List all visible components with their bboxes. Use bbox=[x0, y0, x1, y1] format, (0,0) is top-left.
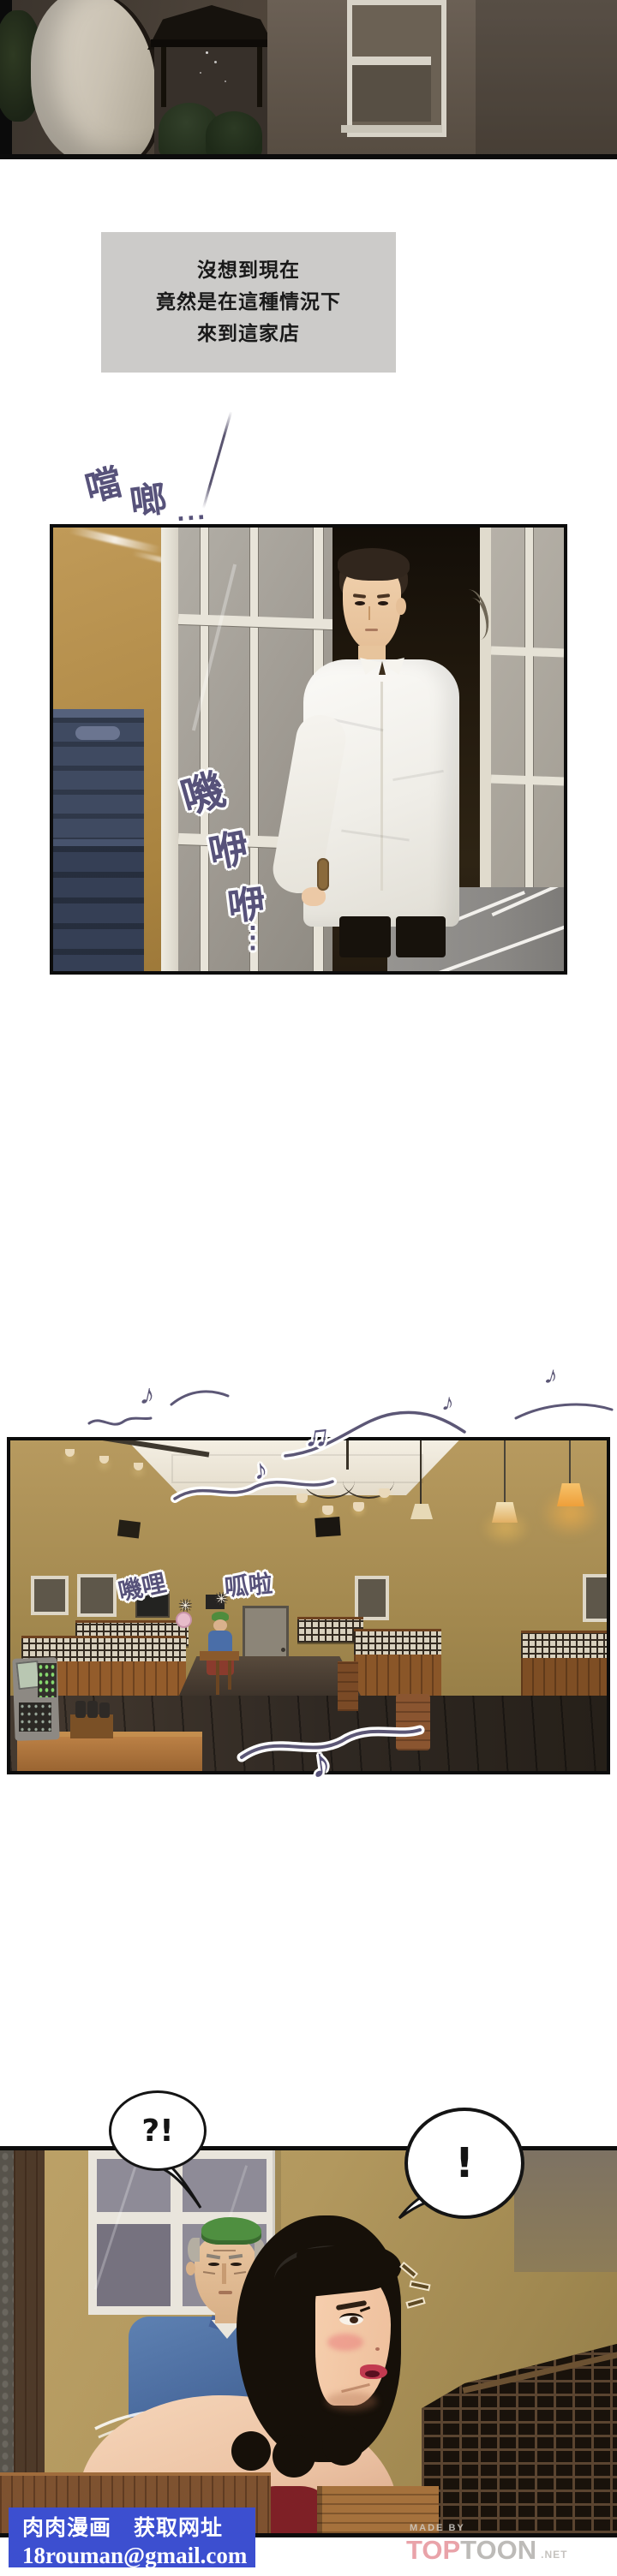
site-branding: MADE BY TOP TOON .NET bbox=[406, 2523, 612, 2569]
panel-night-street bbox=[0, 0, 617, 159]
building-window bbox=[347, 0, 446, 137]
guest-head bbox=[213, 1619, 227, 1631]
blush bbox=[327, 2334, 363, 2351]
watermark-title: 肉肉漫画 bbox=[22, 2511, 111, 2542]
crate bbox=[53, 709, 144, 846]
speaker bbox=[314, 1517, 340, 1537]
music-arc-line bbox=[168, 1386, 231, 1408]
door-crossbar bbox=[491, 647, 564, 658]
table-leg bbox=[216, 1661, 219, 1695]
man-mouth bbox=[365, 629, 378, 631]
sfx-door-chime: 啷 bbox=[128, 480, 168, 521]
pos-keypad bbox=[38, 1663, 57, 1697]
pos-keypad bbox=[19, 1702, 51, 1732]
chair bbox=[338, 1661, 358, 1711]
roof-post bbox=[161, 47, 166, 107]
roof-beam bbox=[151, 39, 273, 47]
window bbox=[31, 1576, 69, 1615]
brand-top: TOP bbox=[406, 2535, 460, 2566]
watermark-subtitle: 获取网址 bbox=[134, 2511, 223, 2542]
door-handle bbox=[317, 858, 329, 891]
track-light-cone bbox=[99, 1456, 109, 1464]
chandelier-shade bbox=[379, 1488, 390, 1498]
door-crossbar bbox=[491, 775, 564, 786]
watermark-box: 肉肉漫画 获取网址 18rouman@gmail.com bbox=[9, 2507, 255, 2567]
booth-lattice bbox=[354, 1629, 441, 1658]
woman-lips bbox=[360, 2364, 387, 2379]
table-leg bbox=[228, 1661, 231, 1690]
pendant-lamp-cone bbox=[557, 1483, 584, 1506]
panel-border-bottom bbox=[0, 154, 617, 159]
watermark-email: 18rouman@gmail.com bbox=[22, 2543, 255, 2569]
brand-toon: TOON bbox=[460, 2535, 536, 2566]
window bbox=[583, 1574, 610, 1622]
glass-shine bbox=[192, 563, 237, 730]
paper-fan bbox=[176, 1612, 192, 1628]
track-light-cone bbox=[134, 1463, 143, 1470]
music-note-icon: ♪ bbox=[542, 1363, 561, 1391]
man-eye bbox=[355, 601, 365, 605]
bush bbox=[206, 111, 262, 159]
shaker bbox=[87, 1701, 98, 1718]
surprise-line bbox=[408, 2299, 423, 2307]
sparkle-icon: ✳ bbox=[216, 1591, 227, 1607]
shaker bbox=[75, 1701, 86, 1718]
gray-wall-band bbox=[514, 2150, 617, 2272]
music-note-icon: ♫ bbox=[303, 1418, 332, 1454]
shade-right bbox=[476, 0, 617, 159]
music-note-icon: ♪ bbox=[138, 1380, 159, 1411]
sfx-door-creak-dots: ⋮ bbox=[238, 923, 267, 952]
hair-curl bbox=[231, 2431, 271, 2471]
track-light-cone bbox=[65, 1449, 75, 1457]
made-by-label: MADE BY bbox=[410, 2523, 465, 2533]
crate-handle bbox=[75, 726, 120, 740]
narration-line: 來到這家店 bbox=[101, 318, 396, 349]
surprise-line bbox=[411, 2282, 428, 2289]
woman-eye bbox=[339, 2313, 363, 2325]
person-back-shirt bbox=[31, 0, 161, 159]
crate-stack bbox=[53, 709, 144, 971]
bubble-text: ! bbox=[455, 2139, 474, 2187]
roof-post bbox=[257, 47, 262, 107]
hair-curl bbox=[322, 2424, 363, 2466]
pendant-lamp-wire bbox=[504, 1440, 506, 1502]
man-pants-leg bbox=[396, 916, 446, 957]
sfx-door-creak: 咿 bbox=[206, 827, 252, 874]
speaker bbox=[117, 1520, 141, 1539]
guest-table bbox=[200, 1651, 239, 1661]
bubble-text: ?! bbox=[141, 2114, 173, 2149]
shaker bbox=[99, 1702, 110, 1718]
table-edge-shadow bbox=[317, 2486, 322, 2533]
surprise-marks bbox=[394, 2260, 437, 2320]
door-glass bbox=[491, 528, 564, 892]
lattice-screen bbox=[422, 2325, 617, 2533]
man-nose bbox=[368, 606, 370, 620]
sfx-door-chime-dots: ... bbox=[176, 496, 208, 525]
sparkle-dot bbox=[200, 72, 201, 74]
door-frame bbox=[480, 528, 491, 892]
panel-cafe bbox=[0, 2146, 617, 2537]
neck-shadow bbox=[326, 2392, 377, 2411]
speed-line bbox=[202, 411, 232, 509]
pendant-lamp-cone bbox=[492, 1502, 518, 1523]
brand-net: .NET bbox=[541, 2549, 567, 2561]
window-pane-shade bbox=[352, 65, 431, 122]
caddy-box bbox=[70, 1714, 113, 1738]
narration-box: 沒想到現在 竟然是在這種情況下 來到這家店 bbox=[101, 232, 396, 373]
hair-curl bbox=[273, 2435, 315, 2478]
music-wave-line bbox=[86, 1411, 154, 1434]
crate bbox=[53, 839, 144, 975]
window bbox=[77, 1574, 117, 1617]
mouth-inner bbox=[365, 2370, 380, 2377]
sparkle-dot bbox=[214, 61, 217, 63]
woman-iris bbox=[350, 2317, 358, 2323]
panel-restaurant: 嘰哩 呱啦 ✳ ✳ bbox=[7, 1437, 610, 1774]
window bbox=[355, 1576, 389, 1620]
door-jamb bbox=[161, 528, 180, 971]
shirt-placket bbox=[380, 682, 383, 891]
nostril bbox=[375, 2347, 380, 2351]
narration-line: 沒想到現在 bbox=[101, 254, 396, 286]
webtoon-page: 沒想到現在 竟然是在這種情況下 來到這家店 噹 啷 ... bbox=[0, 0, 617, 2576]
door-muntin bbox=[525, 528, 533, 892]
sparkle-dot bbox=[225, 80, 226, 82]
panel-door: 嘰 咿 咿 ⋮ bbox=[50, 524, 567, 975]
light-streak bbox=[69, 526, 160, 554]
narration-line: 竟然是在這種情況下 bbox=[101, 286, 396, 318]
chandelier-shade bbox=[353, 1502, 364, 1512]
hanging-lamp-shade bbox=[410, 1504, 433, 1519]
window-sill bbox=[341, 125, 442, 133]
booth-lattice bbox=[521, 1631, 607, 1661]
man-hair-top bbox=[338, 548, 410, 581]
man-ear bbox=[396, 598, 406, 615]
music-arc-line bbox=[512, 1398, 615, 1423]
door-knob bbox=[281, 1648, 285, 1652]
speech-bubble-surprise-right: ! bbox=[404, 2108, 524, 2219]
music-wave-line bbox=[235, 1721, 427, 1768]
man-eye bbox=[378, 601, 388, 605]
man-pants-leg bbox=[339, 916, 391, 957]
sfx-chatter: 呱啦 bbox=[224, 1572, 273, 1601]
condiment-caddy bbox=[70, 1701, 113, 1738]
sfx-door-chime: 噹 bbox=[82, 464, 126, 508]
window-bar bbox=[352, 57, 431, 65]
speech-bubble-surprise-left: ?! bbox=[109, 2090, 207, 2171]
sparkle-dot bbox=[206, 51, 208, 54]
pendant-lamp-wire bbox=[569, 1440, 571, 1483]
surprise-line bbox=[402, 2264, 416, 2277]
door-muntin bbox=[201, 528, 208, 971]
eyelash-flick bbox=[360, 2306, 370, 2312]
glass-door-right bbox=[480, 528, 564, 892]
music-note-icon: ♪ bbox=[252, 1455, 268, 1483]
man-entering bbox=[290, 552, 473, 957]
sparkle-icon: ✳ bbox=[180, 1598, 191, 1613]
pos-register bbox=[10, 1653, 62, 1744]
